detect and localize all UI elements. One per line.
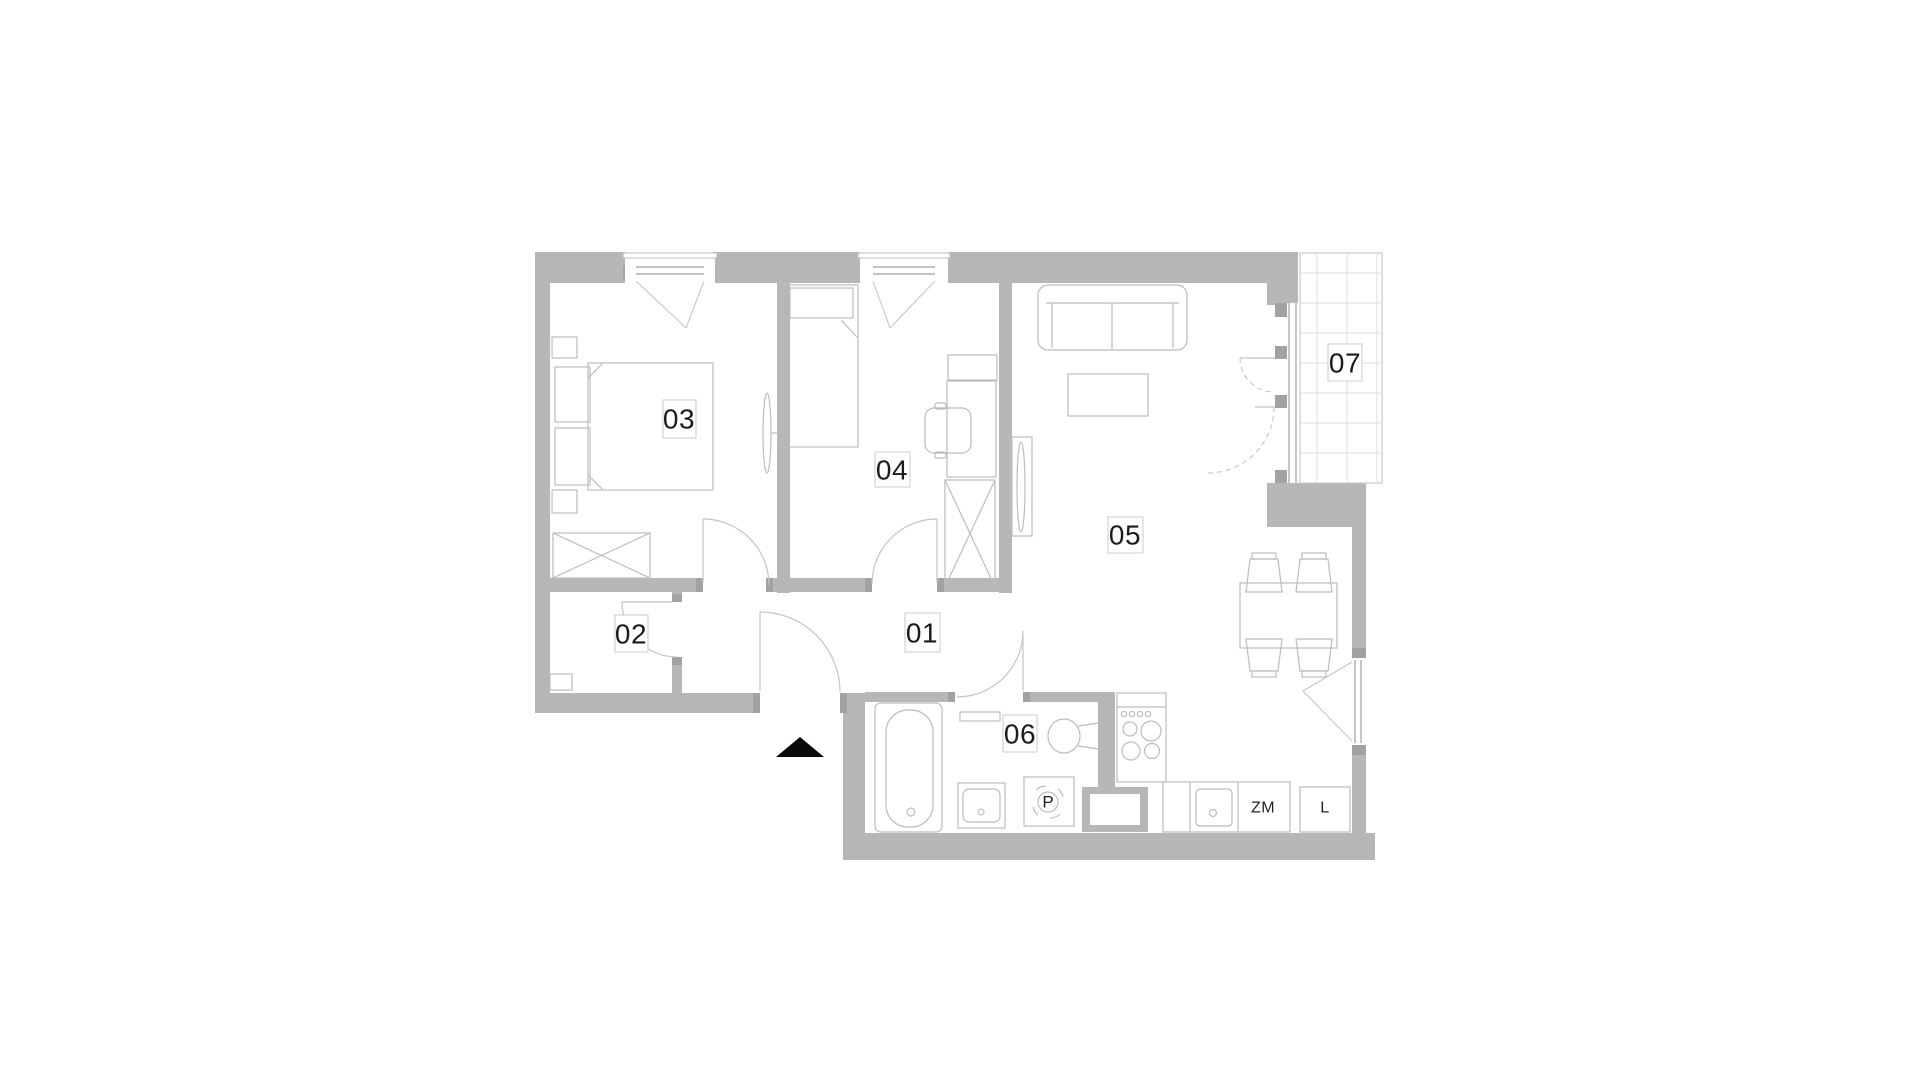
wall-hall-top-1 (550, 578, 696, 592)
wall-left (535, 252, 550, 713)
room-label-06: 06 (1003, 715, 1037, 752)
wall-bottom-left (535, 693, 753, 713)
door-bathroom (957, 631, 1023, 697)
balcony-door-glazing (1208, 303, 1298, 483)
svg-text:05: 05 (1109, 520, 1141, 551)
wardrobe-room04 (945, 480, 995, 587)
svg-text:04: 04 (876, 455, 908, 486)
wall-bathroom-top-1 (865, 692, 948, 702)
svg-text:06: 06 (1004, 719, 1036, 750)
washbasin (958, 783, 1005, 828)
bathtub (875, 703, 942, 832)
wardrobe-room03 (553, 533, 650, 578)
kitchen-counter: ZM L (1163, 782, 1350, 832)
wall-right-lower (1352, 755, 1366, 833)
svg-text:03: 03 (663, 404, 695, 435)
dining-chair-2 (1296, 553, 1332, 592)
wall-below-balcony (1267, 483, 1366, 527)
bathroom-radiator (960, 712, 1000, 721)
room-label-04: 04 (875, 452, 910, 487)
entrance-arrow-icon (776, 737, 824, 757)
washing-machine-label: P (1042, 793, 1053, 812)
balcony-mullion-2 (1275, 346, 1287, 359)
wall-hall-top-2 (773, 578, 865, 592)
room-label-05: 05 (1108, 517, 1143, 553)
door-room04 (872, 519, 937, 584)
wall-hall-top-3 (944, 578, 1012, 592)
balcony-mullion-3 (1275, 395, 1287, 408)
sofa (1038, 285, 1187, 350)
balcony-wall-block-top (1267, 283, 1298, 305)
utility-shaft (550, 674, 572, 690)
svg-text:02: 02 (615, 619, 647, 650)
door-room03 (703, 519, 769, 585)
single-bed (783, 285, 858, 447)
wall-room04-room05 (999, 283, 1012, 593)
radiator-room03 (763, 393, 778, 473)
kitchen: ZM L (1082, 693, 1350, 832)
toilet (1048, 719, 1098, 753)
dining-chair-3 (1246, 639, 1282, 677)
room-label-01: 01 (905, 613, 940, 652)
nightstand-top (552, 337, 577, 358)
room-label-02: 02 (615, 615, 648, 652)
room-label-07: 07 (1328, 344, 1362, 381)
floor-plan-svg: ZM L P (0, 0, 1920, 1080)
dining-chair-1 (1246, 553, 1282, 592)
dishwasher-label: ZM (1251, 800, 1275, 817)
washing-machine: P (1024, 777, 1074, 826)
window-room03 (623, 253, 717, 328)
walls (535, 252, 1375, 860)
nightstand-bottom (552, 490, 577, 513)
furniture-bedroom-03 (552, 337, 778, 578)
bathroom: P (875, 703, 1098, 832)
dining-chair-4 (1296, 639, 1332, 677)
coffee-table (1068, 374, 1148, 416)
fridge-label: L (1320, 800, 1329, 817)
pillow-2 (555, 428, 590, 485)
dining-table (1240, 583, 1337, 648)
desk-chair (925, 403, 971, 458)
pillow-1 (555, 367, 590, 422)
room-label-03: 03 (663, 400, 696, 438)
desk-shelf (948, 355, 997, 380)
kitchen-sink (1196, 789, 1232, 826)
stove (1117, 693, 1166, 782)
balcony-mullion-4 (1275, 470, 1287, 483)
wall-top-right (948, 252, 1298, 283)
radiator-living-room (1012, 437, 1032, 536)
svg-text:07: 07 (1329, 348, 1361, 379)
wall-bathroom-kitchen (1098, 692, 1115, 787)
room-labels: 01 02 03 04 05 06 07 (615, 344, 1362, 752)
pillow-single (790, 288, 853, 318)
doors (622, 519, 1023, 697)
wall-top-middle (713, 252, 860, 283)
floor-plan-canvas: ZM L P (0, 0, 1920, 1080)
svg-text:01: 01 (906, 618, 938, 649)
wall-bottom (843, 833, 1375, 860)
door-entrance (760, 612, 840, 692)
furniture-bedroom-04 (783, 285, 997, 587)
balcony-mullion-1 (1275, 303, 1287, 317)
window-room04 (858, 253, 950, 328)
kitchen-shaft (1082, 787, 1148, 832)
